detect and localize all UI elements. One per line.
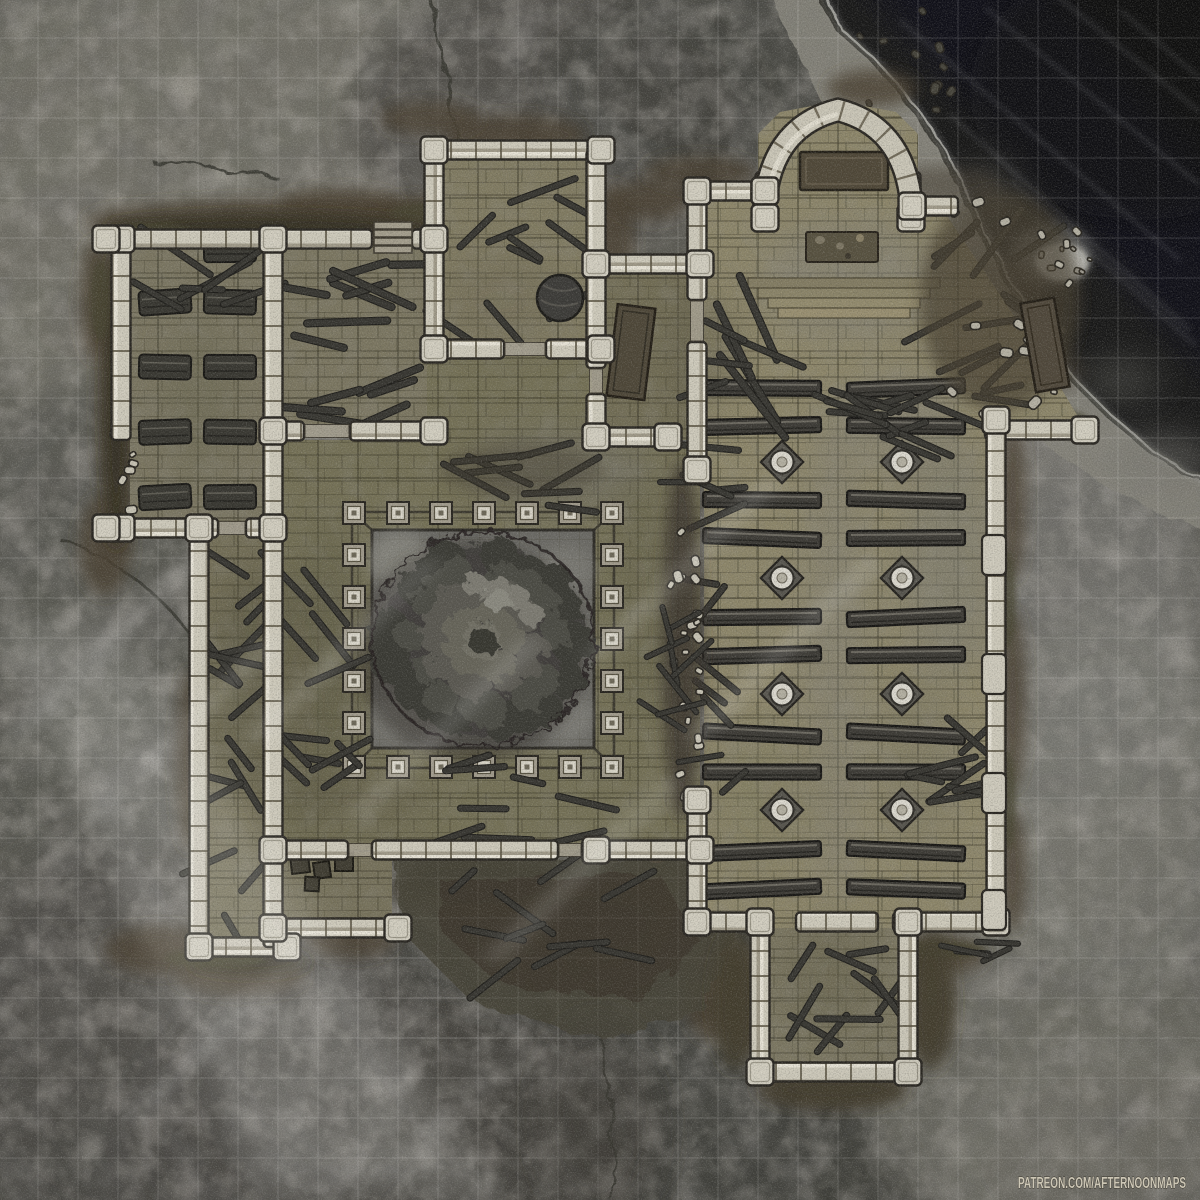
svg-text:PATREON.COM/AFTERNOONMAPS: PATREON.COM/AFTERNOONMAPS — [1018, 1175, 1186, 1192]
